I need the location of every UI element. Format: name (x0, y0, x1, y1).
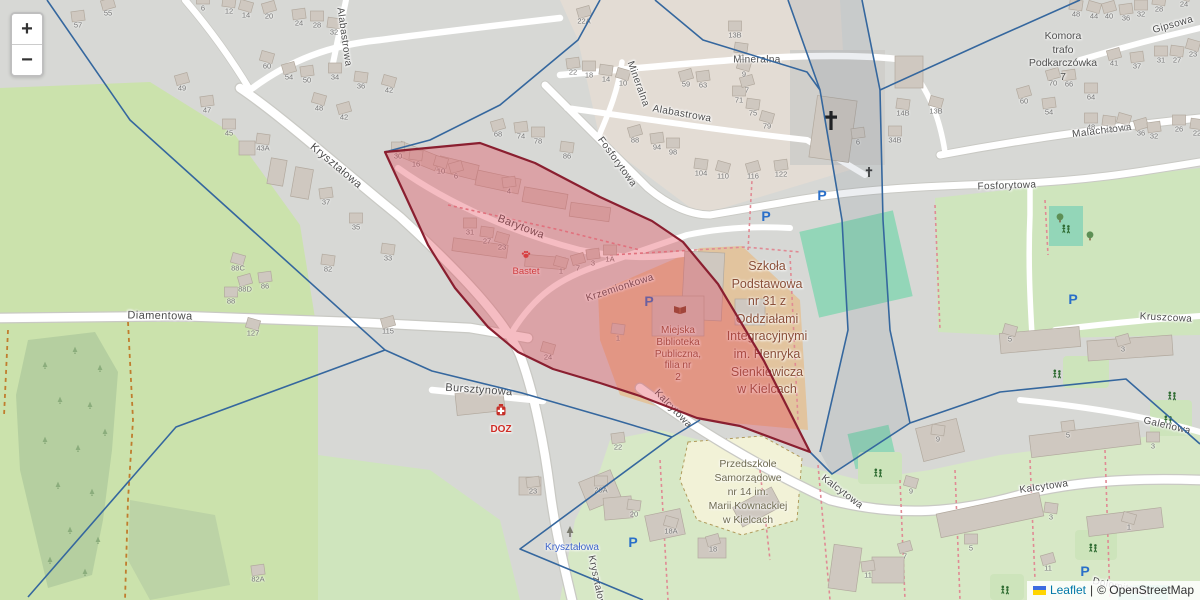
building (650, 132, 664, 144)
building (889, 126, 902, 136)
building (1147, 432, 1160, 442)
building (1133, 117, 1148, 130)
leaflet-link[interactable]: Leaflet (1050, 583, 1086, 597)
building (1102, 115, 1116, 127)
building (200, 95, 214, 107)
building (281, 61, 296, 74)
building (599, 64, 613, 76)
zoom-control: + − (10, 12, 44, 77)
building (1176, 0, 1191, 2)
building (256, 133, 270, 145)
building (746, 98, 760, 110)
parking-icon (817, 187, 826, 203)
building (239, 141, 255, 155)
parking-icon (628, 534, 637, 550)
playground-icon (1053, 370, 1060, 379)
building (595, 476, 608, 486)
building (329, 63, 342, 73)
building (896, 98, 910, 110)
building (251, 564, 265, 576)
building (696, 70, 710, 82)
building (931, 424, 945, 436)
building (350, 213, 363, 223)
building (197, 0, 210, 4)
building (300, 65, 314, 77)
building (774, 159, 788, 171)
building (225, 287, 238, 297)
building (1101, 0, 1116, 13)
building (71, 10, 85, 22)
building (1016, 85, 1031, 98)
playground-icon (1168, 392, 1175, 401)
building (1152, 0, 1166, 6)
building (319, 187, 333, 199)
building (311, 11, 324, 21)
parking-icon (1080, 563, 1089, 579)
building (1044, 502, 1058, 514)
building (292, 8, 306, 20)
building (1170, 45, 1184, 57)
building (336, 101, 351, 114)
attribution-separator: | (1090, 583, 1093, 597)
zoom-in-button[interactable]: + (12, 14, 42, 45)
building (667, 138, 680, 148)
building (381, 74, 396, 87)
building (1085, 83, 1098, 93)
building (694, 158, 708, 170)
building (1062, 69, 1076, 81)
building (1119, 3, 1133, 15)
building (238, 0, 253, 13)
building (327, 17, 341, 29)
building (861, 560, 875, 572)
building (583, 61, 596, 71)
building (828, 544, 862, 591)
building (1130, 51, 1144, 63)
building (223, 119, 236, 129)
building (1085, 113, 1098, 123)
building (259, 50, 274, 63)
building (1147, 121, 1161, 133)
building (611, 432, 625, 444)
building (729, 21, 742, 31)
building (1173, 115, 1186, 125)
building (321, 254, 335, 266)
building (381, 243, 395, 255)
building (291, 167, 314, 200)
building (532, 127, 545, 137)
building (1155, 46, 1168, 56)
building (1190, 118, 1200, 130)
map-canvas[interactable]: P (0, 0, 1200, 600)
building (1185, 38, 1200, 51)
parking-icon (1068, 291, 1077, 307)
ukraine-flag-icon (1033, 586, 1046, 595)
building (566, 57, 580, 69)
attribution-bar: Leaflet | © OpenStreetMap (1027, 581, 1200, 600)
building (560, 141, 574, 153)
building (1042, 97, 1056, 109)
building (258, 271, 272, 283)
building (1135, 0, 1148, 10)
building (1087, 335, 1173, 361)
building (627, 499, 641, 511)
building (222, 0, 236, 8)
building (100, 0, 115, 11)
building (965, 534, 978, 544)
building (267, 158, 287, 186)
building (174, 72, 189, 85)
building (1045, 67, 1060, 80)
building (872, 557, 904, 583)
building (311, 92, 326, 105)
building (354, 71, 368, 83)
zoom-out-button[interactable]: − (12, 45, 42, 75)
building (526, 476, 540, 488)
building (514, 121, 528, 133)
building (261, 0, 276, 13)
osm-copyright[interactable]: © OpenStreetMap (1097, 583, 1194, 597)
parking-icon (761, 208, 770, 224)
building (1061, 420, 1075, 432)
building (1086, 0, 1101, 13)
building (490, 118, 505, 131)
